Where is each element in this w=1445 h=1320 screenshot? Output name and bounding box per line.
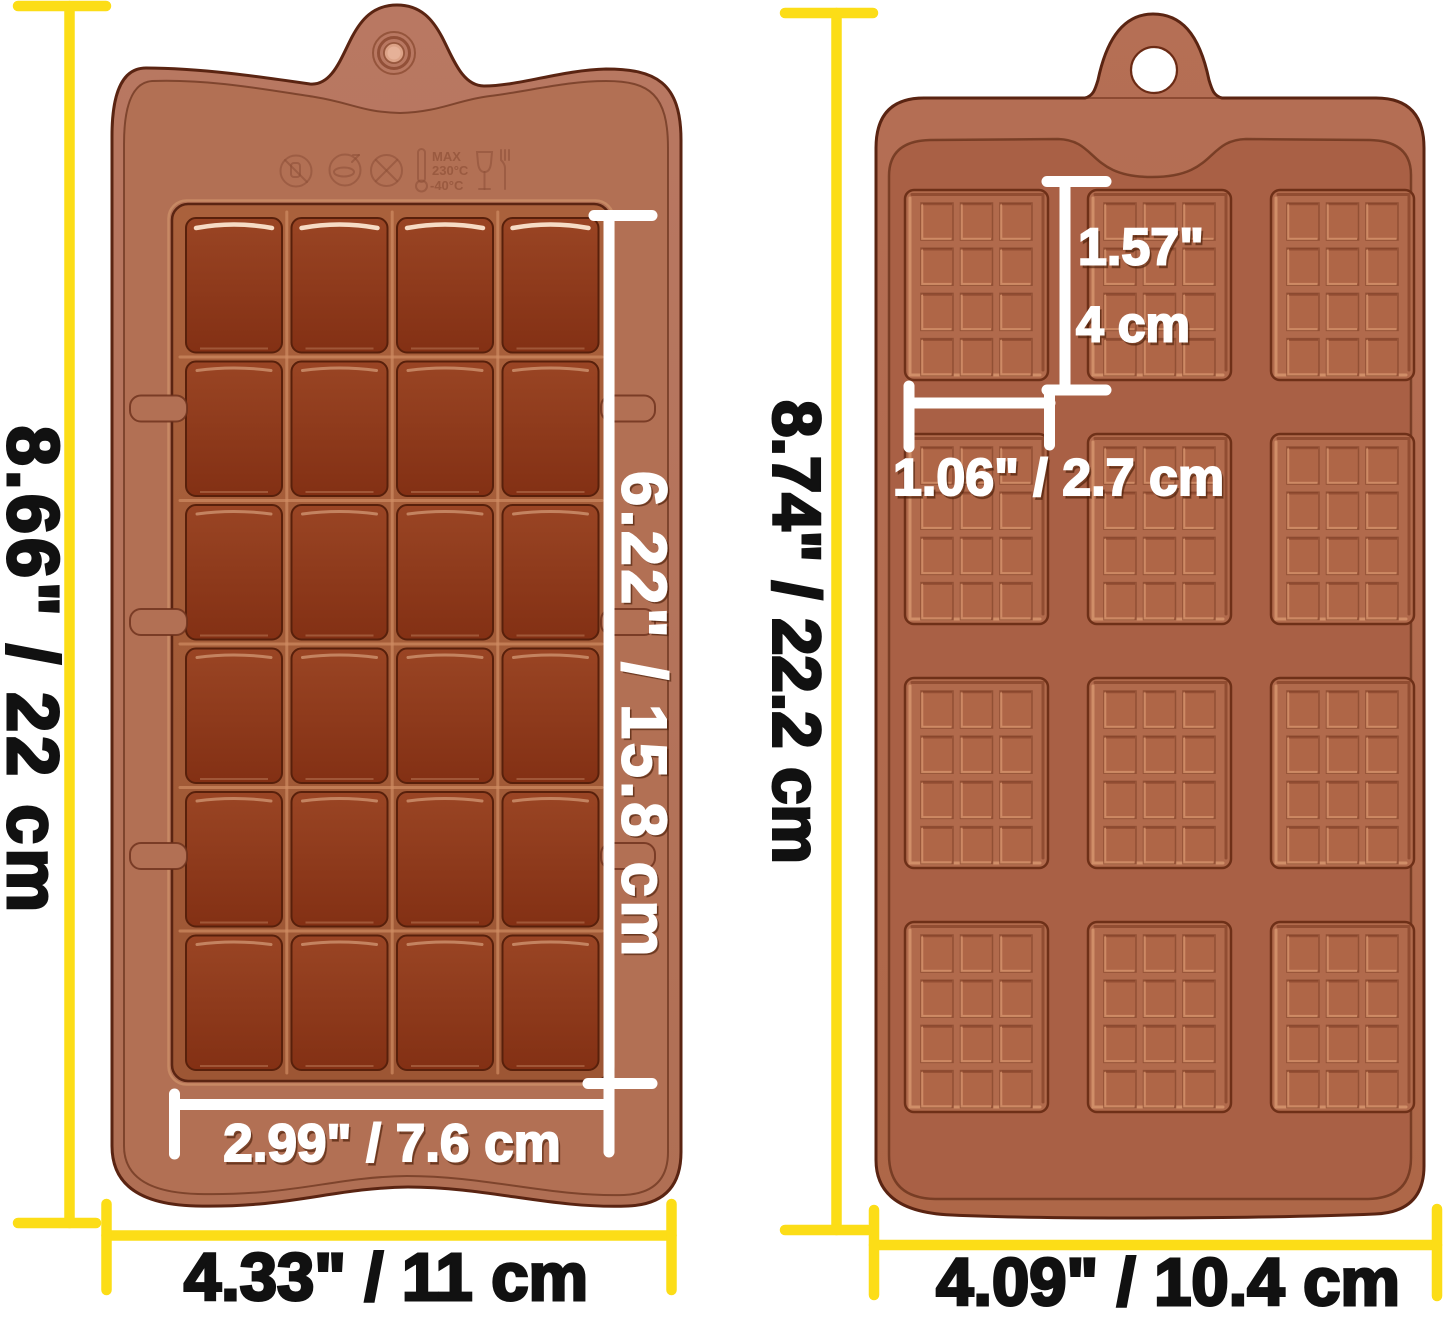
svg-text:4 cm: 4 cm bbox=[1076, 297, 1190, 353]
svg-text:230°C: 230°C bbox=[432, 163, 469, 178]
svg-text:8.74" / 22.2 cm: 8.74" / 22.2 cm bbox=[759, 400, 834, 864]
svg-text:6.22" / 15.8 cm: 6.22" / 15.8 cm bbox=[609, 471, 679, 960]
svg-text:-40°C: -40°C bbox=[430, 178, 464, 193]
svg-text:1.06" / 2.7 cm: 1.06" / 2.7 cm bbox=[893, 449, 1224, 507]
svg-text:1.57": 1.57" bbox=[1078, 219, 1204, 277]
svg-text:4.09" / 10.4 cm: 4.09" / 10.4 cm bbox=[936, 1245, 1400, 1320]
svg-text:2.99" / 7.6 cm: 2.99" / 7.6 cm bbox=[223, 1114, 560, 1173]
svg-text:8.66" / 22 cm: 8.66" / 22 cm bbox=[0, 426, 72, 916]
svg-text:MAX: MAX bbox=[432, 149, 461, 164]
svg-text:4.33" / 11 cm: 4.33" / 11 cm bbox=[184, 1240, 588, 1315]
